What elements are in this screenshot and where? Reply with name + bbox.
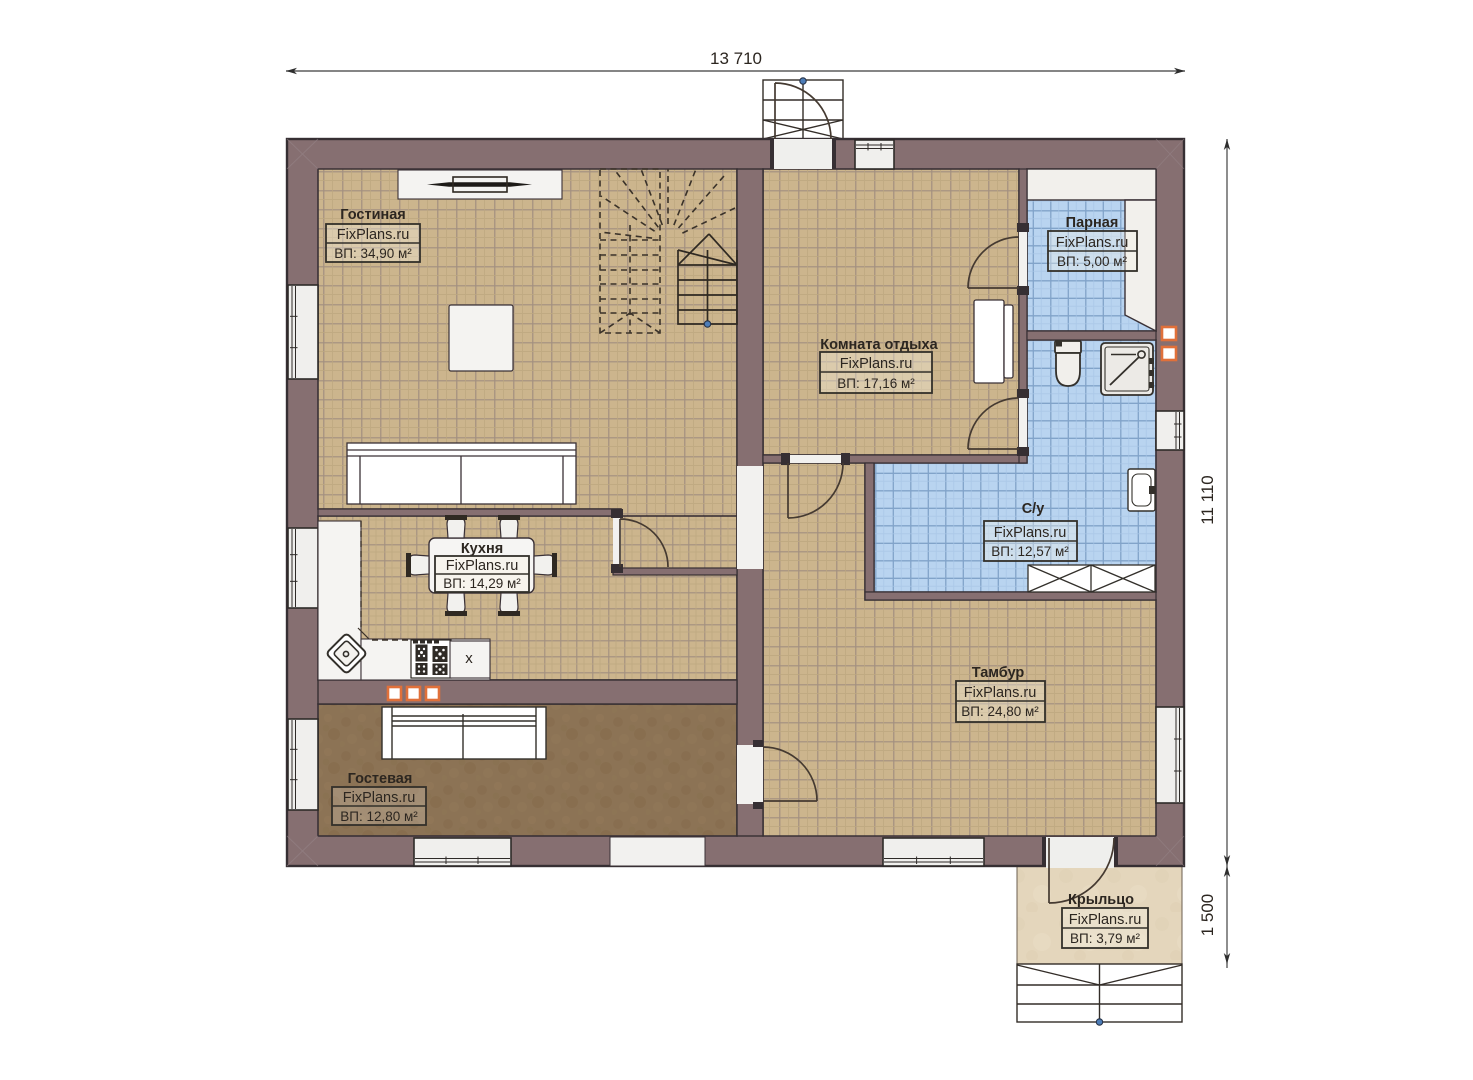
svg-text:Тамбур: Тамбур xyxy=(972,665,1025,681)
svg-text:Комната отдыха: Комната отдыха xyxy=(820,337,938,353)
svg-text:x: x xyxy=(465,650,473,667)
svg-text:ВП: 24,80 м²: ВП: 24,80 м² xyxy=(961,704,1039,719)
svg-text:ВП: 34,90 м²: ВП: 34,90 м² xyxy=(334,246,412,261)
svg-text:Кухня: Кухня xyxy=(461,541,503,557)
svg-text:13 710: 13 710 xyxy=(710,49,762,68)
svg-text:FixPlans.ru: FixPlans.ru xyxy=(1056,235,1129,251)
svg-text:Крыльцо: Крыльцо xyxy=(1068,892,1134,908)
svg-text:Парная: Парная xyxy=(1066,215,1119,231)
svg-text:ВП: 12,57 м²: ВП: 12,57 м² xyxy=(991,544,1069,559)
svg-text:FixPlans.ru: FixPlans.ru xyxy=(964,685,1037,701)
svg-text:ВП: 3,79 м²: ВП: 3,79 м² xyxy=(1070,931,1141,946)
svg-text:ВП: 5,00 м²: ВП: 5,00 м² xyxy=(1057,254,1128,269)
svg-text:ВП: 12,80 м²: ВП: 12,80 м² xyxy=(340,809,418,824)
svg-text:11 110: 11 110 xyxy=(1198,475,1217,524)
svg-text:1 500: 1 500 xyxy=(1198,894,1217,937)
svg-text:Гостиная: Гостиная xyxy=(340,207,406,223)
svg-text:ВП: 17,16 м²: ВП: 17,16 м² xyxy=(837,376,915,391)
svg-text:FixPlans.ru: FixPlans.ru xyxy=(840,356,913,372)
svg-text:FixPlans.ru: FixPlans.ru xyxy=(994,525,1067,541)
svg-text:ВП: 14,29 м²: ВП: 14,29 м² xyxy=(443,576,521,591)
svg-text:Гостевая: Гостевая xyxy=(348,771,413,787)
svg-text:FixPlans.ru: FixPlans.ru xyxy=(343,790,416,806)
svg-text:С/у: С/у xyxy=(1022,501,1045,517)
svg-text:FixPlans.ru: FixPlans.ru xyxy=(337,227,410,243)
svg-text:FixPlans.ru: FixPlans.ru xyxy=(1069,912,1142,928)
svg-text:FixPlans.ru: FixPlans.ru xyxy=(446,558,519,574)
